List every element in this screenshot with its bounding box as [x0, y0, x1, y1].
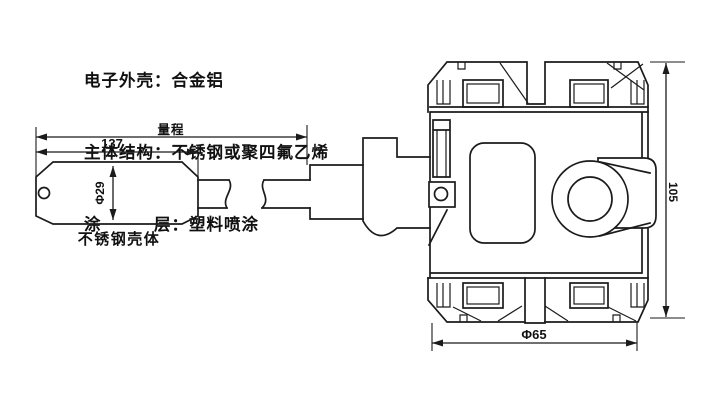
side-channel: [433, 120, 450, 177]
cable-boot: [310, 165, 363, 219]
cable-segment: [262, 180, 310, 208]
display-window: [470, 143, 535, 243]
technical-drawing: 量程 137 Φ29 105 Φ65 不锈钢壳体: [0, 0, 719, 405]
bottom-clamp-right-inner: [574, 287, 604, 304]
bottom-cap-notches: [460, 315, 620, 322]
range-dim-text: 量程: [157, 122, 184, 137]
gland-outer-circle: [552, 161, 628, 237]
probe-outline: [36, 162, 198, 224]
cable-drawing: [198, 138, 430, 236]
bottom-cap-center-block: [525, 278, 545, 323]
lock-screw-block: [429, 182, 455, 207]
probe-length-text: 137: [101, 136, 123, 151]
probe-body-drawing: [36, 162, 198, 224]
probe-mounting-hole: [39, 188, 50, 199]
probe-body-label: 不锈钢壳体: [78, 230, 161, 248]
cable-gland: [552, 158, 656, 237]
engineering-drawing-page: 电子外壳：合金铝 主体结构：不锈钢或聚四氟乙烯 涂 层：塑料喷涂: [0, 0, 719, 405]
bottom-clamp-left-inner: [467, 287, 499, 304]
top-clamp-right-inner: [574, 84, 604, 103]
cable-connector: [363, 138, 430, 236]
top-cap-ribs: [500, 63, 644, 103]
housing-height-text: 105: [666, 182, 680, 202]
probe-diameter-text: Φ29: [93, 181, 107, 205]
top-cap-notches: [458, 62, 621, 69]
cable-stub: [198, 180, 231, 208]
housing-drawing: [428, 62, 656, 323]
housing-diameter-text: Φ65: [521, 327, 546, 342]
lock-screw-diagonal: [429, 210, 447, 245]
top-clamp-left-inner: [467, 84, 499, 103]
